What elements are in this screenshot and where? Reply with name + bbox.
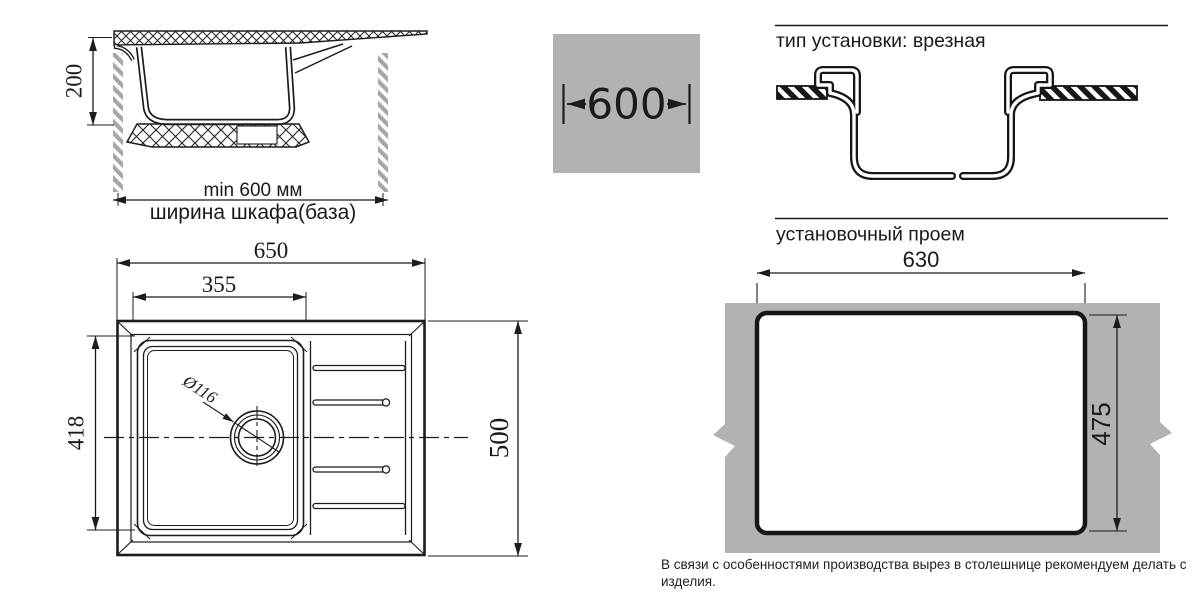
dim-cabinet-width-label: ширина шкафа(база) xyxy=(150,201,357,224)
side-view-drawing: 200 min 600 мм ширина шкафа(база) xyxy=(55,20,545,235)
cabinet-wall-left xyxy=(113,53,123,192)
install-type-title: тип установки: врезная xyxy=(776,30,986,52)
cabinet-wall-right xyxy=(378,53,388,192)
dim-depth-label: 200 xyxy=(62,64,87,99)
cutout-opening xyxy=(757,313,1085,533)
bowl-shell-outline xyxy=(139,47,292,122)
profile-left-core xyxy=(818,70,952,176)
dim-min-width-label: min 600 мм xyxy=(204,180,303,201)
sink-top-surface xyxy=(114,31,427,45)
ridge-2-tip xyxy=(382,399,389,406)
dim-overall-depth-label: 500 xyxy=(484,418,514,459)
badge-width-value: 600 xyxy=(586,80,666,129)
drainboard-ridge-4 xyxy=(313,504,405,509)
drainboard-ridge-1 xyxy=(313,366,405,371)
drainboard-ridge-2 xyxy=(313,400,385,405)
dim-200-extensions xyxy=(87,38,114,126)
dim-bowl-width-label: 355 xyxy=(202,272,237,297)
install-type-drawing: тип установки: врезная установочный прое… xyxy=(770,15,1203,245)
bowl-shell-core xyxy=(139,47,292,122)
drainboard-brace xyxy=(293,44,352,73)
bowl-base-hatch xyxy=(127,124,309,147)
drainboard-ridge-3 xyxy=(313,467,385,472)
dim-overall-width-label: 650 xyxy=(254,238,289,263)
ridge-3-tip xyxy=(382,466,389,473)
countertop-right xyxy=(1040,86,1137,100)
cutout-title: установочный проем xyxy=(776,224,965,246)
width-badge: 600 xyxy=(553,34,700,173)
profile-left-outline xyxy=(818,70,952,176)
top-view-drawing: 650 355 Ø116 418 xyxy=(58,238,540,568)
dim-bowl-depth-label: 418 xyxy=(64,416,89,451)
cutout-drawing: 630 475 xyxy=(690,245,1203,575)
profile-right-core xyxy=(963,70,1050,176)
sink-drawing-sheet: 200 min 600 мм ширина шкафа(база) 600 ти… xyxy=(0,0,1203,606)
drain-sump xyxy=(237,126,277,144)
production-note: В связи с особенностями производства выр… xyxy=(661,556,1196,590)
dim-650-extensions xyxy=(117,258,425,320)
cutout-height-label: 475 xyxy=(1086,402,1116,445)
cutout-width-label: 630 xyxy=(903,247,940,272)
